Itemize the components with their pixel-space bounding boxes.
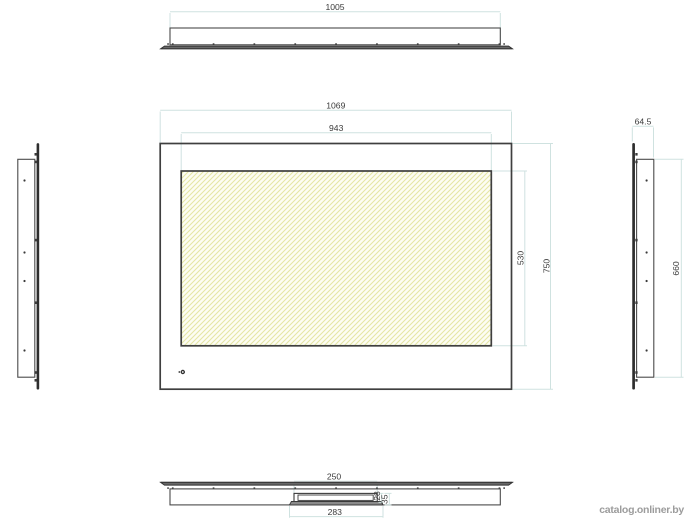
svg-text:283: 283: [328, 507, 343, 517]
svg-text:530: 530: [516, 251, 526, 266]
svg-text:750: 750: [541, 259, 551, 274]
svg-text:35: 35: [379, 494, 389, 504]
svg-text:1005: 1005: [325, 2, 344, 12]
svg-text:660: 660: [671, 261, 681, 276]
svg-text:250: 250: [327, 472, 342, 482]
svg-text:64.5: 64.5: [635, 117, 652, 127]
svg-text:1069: 1069: [326, 101, 345, 111]
svg-text:943: 943: [329, 123, 344, 133]
